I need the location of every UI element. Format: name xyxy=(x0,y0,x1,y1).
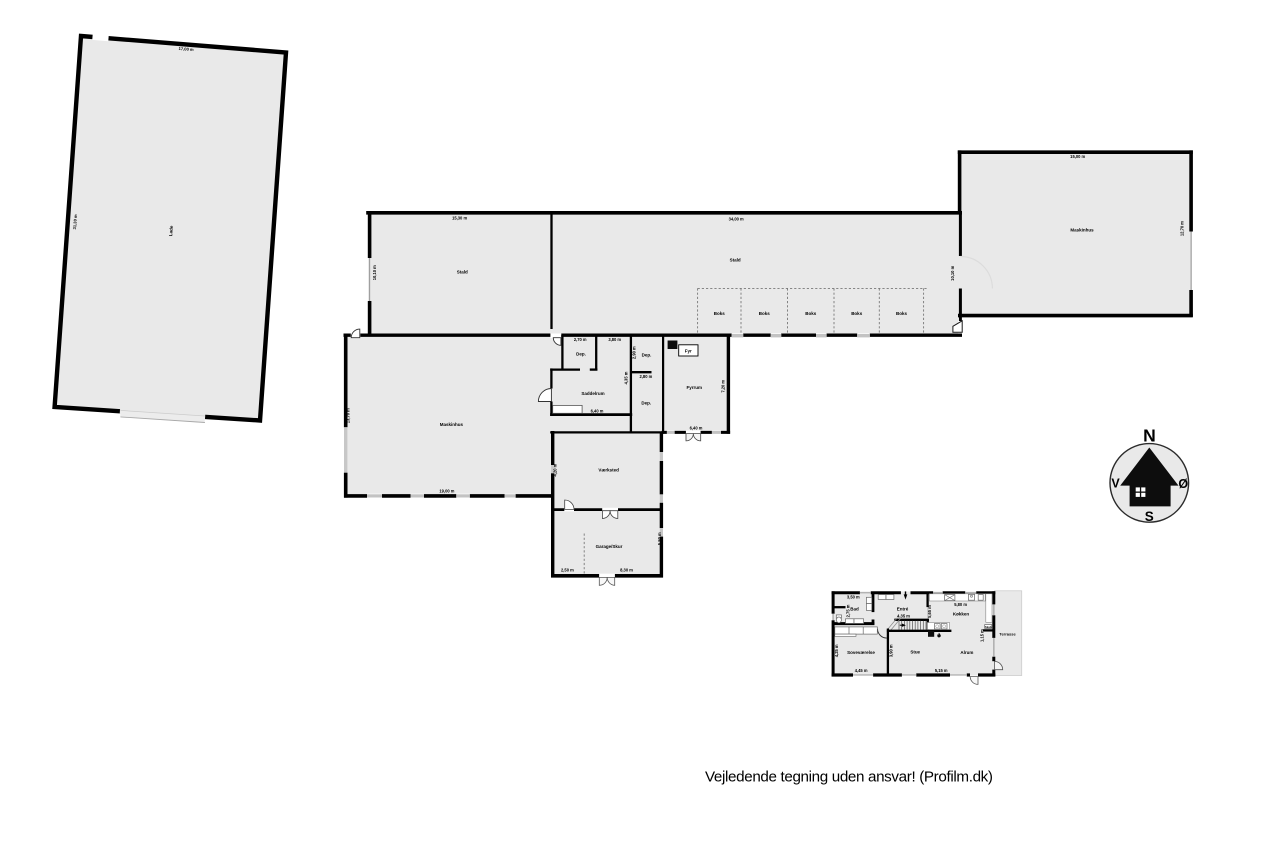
svg-text:2,90 m: 2,90 m xyxy=(632,346,637,359)
svg-text:5,50 m: 5,50 m xyxy=(657,532,662,545)
svg-text:Stue: Stue xyxy=(910,650,920,655)
svg-text:Dep.: Dep. xyxy=(576,352,586,357)
svg-text:Boks: Boks xyxy=(759,311,771,316)
svg-text:3,90 m: 3,90 m xyxy=(888,644,893,657)
svg-text:15,00 m: 15,00 m xyxy=(1070,154,1085,159)
svg-text:Stald: Stald xyxy=(730,257,741,262)
svg-text:4,20 m: 4,20 m xyxy=(552,463,557,476)
svg-text:Soveværelse: Soveværelse xyxy=(847,650,875,655)
svg-text:3,50 m: 3,50 m xyxy=(847,594,860,599)
svg-text:Skab: Skab xyxy=(985,625,992,629)
svg-text:Boks: Boks xyxy=(714,311,726,316)
svg-text:15,30 m: 15,30 m xyxy=(452,215,467,220)
svg-text:12,70 m: 12,70 m xyxy=(1180,221,1185,236)
svg-text:Stald: Stald xyxy=(457,269,468,274)
svg-text:Maskinhus: Maskinhus xyxy=(440,422,464,427)
svg-text:10,10 m: 10,10 m xyxy=(372,265,377,280)
svg-text:7,20 m: 7,20 m xyxy=(721,380,726,393)
svg-text:Vejledende tegning uden ansvar: Vejledende tegning uden ansvar! (Profilm… xyxy=(705,768,993,785)
svg-text:V: V xyxy=(1111,477,1120,491)
svg-text:5,65 m: 5,65 m xyxy=(927,605,932,618)
svg-text:13,70 m: 13,70 m xyxy=(345,408,350,423)
svg-text:8,30 m: 8,30 m xyxy=(620,568,633,573)
svg-text:5,15 m: 5,15 m xyxy=(935,668,948,673)
svg-text:2,50 m: 2,50 m xyxy=(561,568,574,573)
svg-text:Saddelrum: Saddelrum xyxy=(581,391,604,396)
svg-text:S: S xyxy=(1145,509,1154,524)
svg-text:1,15 m: 1,15 m xyxy=(979,629,984,642)
svg-text:Værksted: Værksted xyxy=(598,468,619,473)
svg-text:4,35 m: 4,35 m xyxy=(897,614,910,619)
svg-text:4,25 m: 4,25 m xyxy=(834,644,839,657)
svg-text:6,40 m: 6,40 m xyxy=(591,408,604,413)
svg-text:Lade: Lade xyxy=(168,225,174,236)
svg-text:4,35 m: 4,35 m xyxy=(624,371,629,384)
svg-text:Terrasse: Terrasse xyxy=(999,631,1016,636)
svg-text:Garage/Skur: Garage/Skur xyxy=(596,544,623,549)
svg-text:Dep.: Dep. xyxy=(642,352,652,357)
svg-text:34,00 m: 34,00 m xyxy=(729,217,744,222)
svg-text:2,75 m: 2,75 m xyxy=(845,604,850,617)
svg-text:Dep.: Dep. xyxy=(641,400,651,405)
svg-text:Ø: Ø xyxy=(1178,477,1188,491)
svg-text:Alrum: Alrum xyxy=(960,650,973,655)
svg-text:Boks: Boks xyxy=(851,311,863,316)
svg-text:2,70 m: 2,70 m xyxy=(574,337,587,342)
svg-text:Køkken: Køkken xyxy=(953,612,970,617)
svg-text:3,80 m: 3,80 m xyxy=(608,337,621,342)
svg-text:10,10 m: 10,10 m xyxy=(950,265,955,280)
svg-text:Fyr: Fyr xyxy=(685,349,692,354)
svg-text:2,80 m: 2,80 m xyxy=(640,374,653,379)
svg-text:Bad: Bad xyxy=(850,606,859,611)
svg-text:N: N xyxy=(1143,425,1156,445)
svg-text:Fyrrum: Fyrrum xyxy=(687,385,703,390)
svg-text:19,00 m: 19,00 m xyxy=(439,488,454,493)
svg-text:4,45 m: 4,45 m xyxy=(855,668,868,673)
svg-text:Entré: Entré xyxy=(897,606,909,611)
svg-text:Boks: Boks xyxy=(805,311,817,316)
svg-text:5,80 m: 5,80 m xyxy=(954,602,967,607)
svg-text:Maskinhus: Maskinhus xyxy=(1070,228,1094,233)
svg-text:Boks: Boks xyxy=(896,311,908,316)
svg-text:6,40 m: 6,40 m xyxy=(690,426,703,431)
